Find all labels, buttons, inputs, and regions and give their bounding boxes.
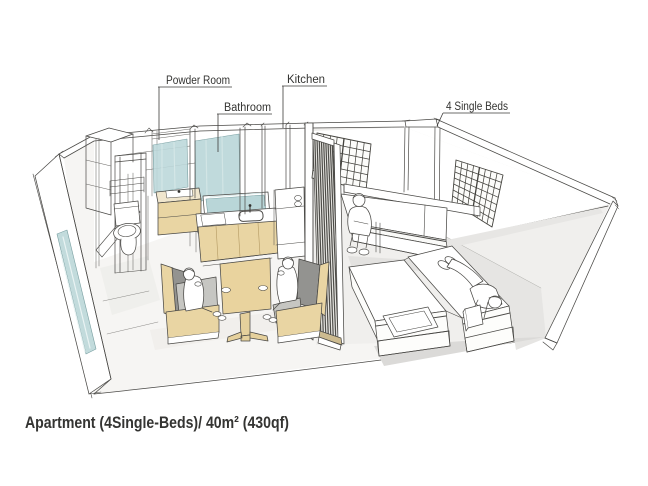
svg-text:Apartment (4Single-Beds)/ 40m²: Apartment (4Single-Beds)/ 40m² (430qf) [25, 414, 289, 432]
svg-text:Kitchen: Kitchen [287, 74, 325, 86]
svg-text:4 Single Beds: 4 Single Beds [446, 101, 508, 113]
svg-text:Bathroom: Bathroom [224, 102, 271, 114]
svg-text:Powder Room: Powder Room [166, 75, 230, 87]
